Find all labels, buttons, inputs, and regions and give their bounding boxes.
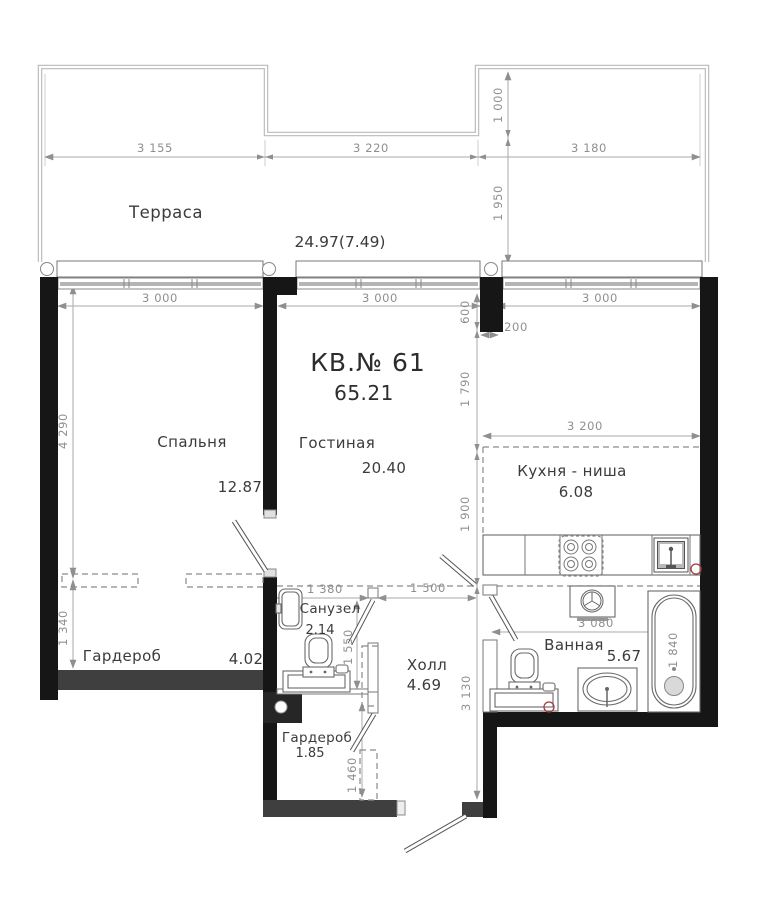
kitchen-area: 6.08 (559, 483, 594, 501)
dim-1950: 1 950 (491, 185, 505, 221)
terrace-area: 24.97(7.49) (295, 233, 386, 251)
wardrobe-big-area: 4.02 (229, 650, 264, 668)
bedroom-door (234, 521, 266, 571)
bathroom-area: 5.67 (607, 647, 642, 665)
dim-600: 600 (458, 300, 472, 324)
bathroom-door (491, 596, 516, 640)
dim-1900: 1 900 (458, 496, 472, 532)
bedroom-area: 12.87 (218, 478, 262, 496)
dim-3000-b: 3 000 (362, 291, 398, 305)
dim-4290: 4 290 (56, 413, 70, 449)
apartment-total-area: 65.21 (334, 381, 394, 405)
dim-3180: 3 180 (571, 141, 607, 155)
wc-label: Санузел (300, 601, 361, 617)
toilet-icon (303, 634, 334, 677)
oval-sink-icon (578, 668, 637, 711)
kitchen-label: Кухня - ниша (517, 462, 626, 480)
entry-door (405, 816, 466, 851)
wardrobe-door (352, 714, 374, 751)
hall-label: Холл (407, 656, 447, 674)
window-band (41, 261, 703, 289)
partitions (264, 510, 497, 815)
column-circle (485, 263, 498, 276)
dim-3130: 3 130 (459, 675, 473, 711)
toilet-icon (509, 649, 540, 692)
dim-3000-a: 3 000 (142, 291, 178, 305)
wc-area: 2.14 (306, 623, 335, 638)
bedroom-label: Спальня (157, 433, 227, 451)
dim-1500: 1 500 (410, 581, 446, 595)
terrace-label: Терраса (128, 203, 203, 222)
dim-1340: 1 340 (56, 610, 70, 646)
dim-1460: 1 460 (345, 757, 359, 793)
dim-1790: 1 790 (458, 371, 472, 407)
floor-plan-page: 3 155 3 220 3 180 1 000 1 950 3 000 3 00… (0, 0, 758, 905)
dim-200: 200 (504, 320, 528, 334)
bathroom-label: Ванная (544, 636, 604, 654)
floor-plan-drawing: 3 155 3 220 3 180 1 000 1 950 3 000 3 00… (0, 0, 758, 905)
dim-3200: 3 200 (567, 419, 603, 433)
dim-3155: 3 155 (137, 141, 173, 155)
dim-3220: 3 220 (353, 141, 389, 155)
dim-1000: 1 000 (491, 87, 505, 123)
wardrobe-small-area: 1.85 (296, 746, 325, 761)
kitchen-sink-icon (654, 538, 688, 572)
column-circle (41, 263, 54, 276)
living-label: Гостиная (299, 434, 375, 452)
wardrobe-big-label: Гардероб (83, 647, 162, 665)
dim-1550: 1 550 (341, 629, 355, 665)
apartment-title: КВ.№ 61 (310, 348, 426, 377)
dim-3000-c: 3 000 (582, 291, 618, 305)
column-circle (263, 263, 276, 276)
door-frame (264, 510, 276, 518)
washbasin-icon (276, 589, 302, 629)
living-hall-door (441, 556, 475, 585)
dim-3080: 3 080 (578, 616, 614, 630)
kitchen-counter (483, 535, 701, 576)
vent-shaft-circle (275, 701, 287, 713)
dim-1380: 1 380 (307, 582, 343, 596)
wardrobe-small-label: Гардероб (282, 730, 352, 746)
dim-1840: 1 840 (666, 632, 680, 668)
hall-area: 4.69 (407, 676, 442, 694)
living-area: 20.40 (362, 459, 406, 477)
door-frame (397, 801, 405, 815)
